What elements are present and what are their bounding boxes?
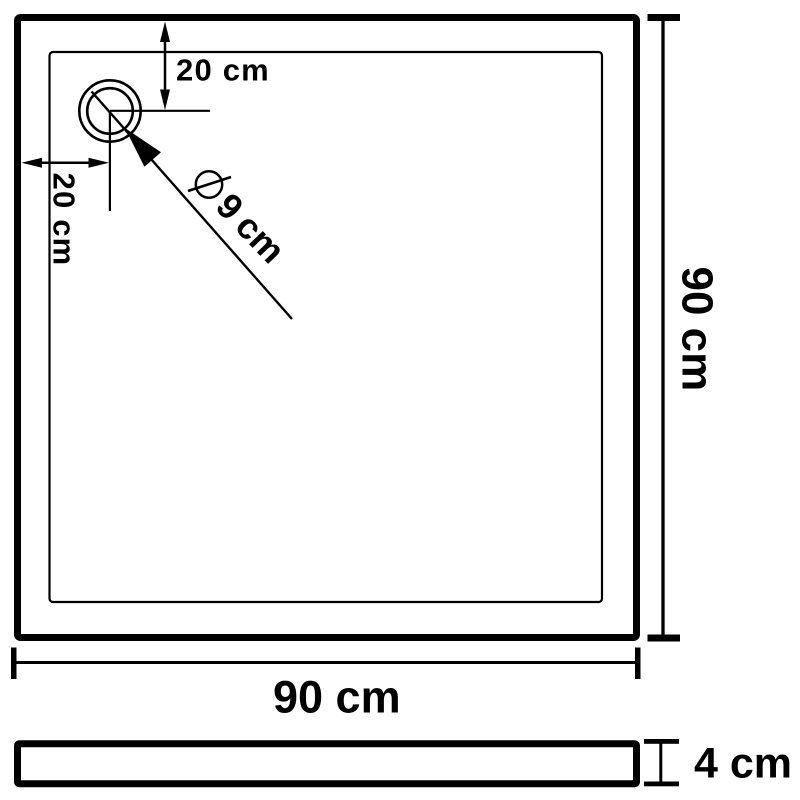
svg-text:20 cm: 20 cm (176, 53, 270, 88)
svg-text:4 cm: 4 cm (694, 740, 792, 788)
svg-text:90 cm: 90 cm (673, 267, 722, 392)
svg-text:20 cm: 20 cm (47, 173, 82, 267)
svg-text:9 cm: 9 cm (208, 185, 293, 271)
svg-text:90 cm: 90 cm (273, 672, 401, 723)
